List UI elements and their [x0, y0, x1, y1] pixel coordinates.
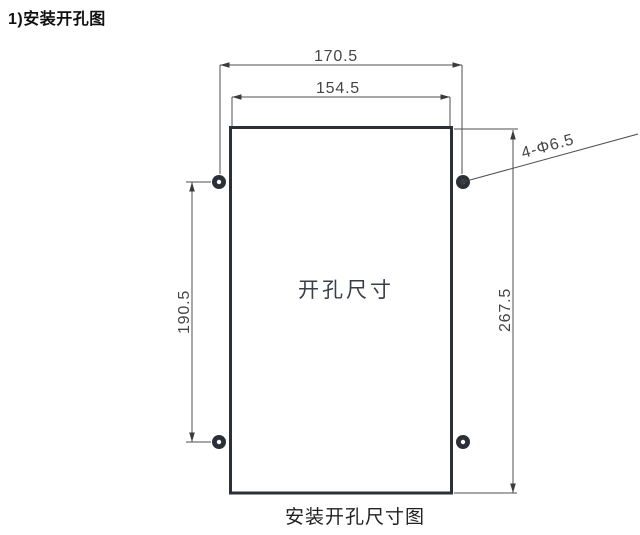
dimension-hole-span-width: 170.5 [220, 48, 462, 174]
dimension-cutout-width: 154.5 [232, 80, 450, 126]
drawing-caption: 安装开孔尺寸图 [285, 506, 425, 528]
dimension-hole-span-height: 190.5 [176, 182, 211, 442]
cutout-drawing: 开孔尺寸 170.5 [0, 0, 640, 535]
dimension-cutout-height-value: 267.5 [497, 288, 514, 332]
hole-diameter-callout-value: 4-Φ6.5 [519, 131, 576, 162]
cutout-rectangle [231, 128, 452, 494]
cutout-center-label: 开孔尺寸 [298, 279, 394, 302]
mounting-hole-top-left [212, 175, 226, 189]
mounting-hole-bottom-left [212, 435, 226, 449]
mounting-hole-bottom-right [456, 435, 470, 449]
dimension-cutout-width-value: 154.5 [316, 80, 360, 97]
page: 1)安装开孔图 开孔尺寸 [0, 0, 640, 535]
dimension-hole-span-width-value: 170.5 [314, 48, 358, 65]
hole-diameter-callout: 4-Φ6.5 [460, 131, 638, 185]
dimension-hole-span-height-value: 190.5 [176, 290, 193, 334]
